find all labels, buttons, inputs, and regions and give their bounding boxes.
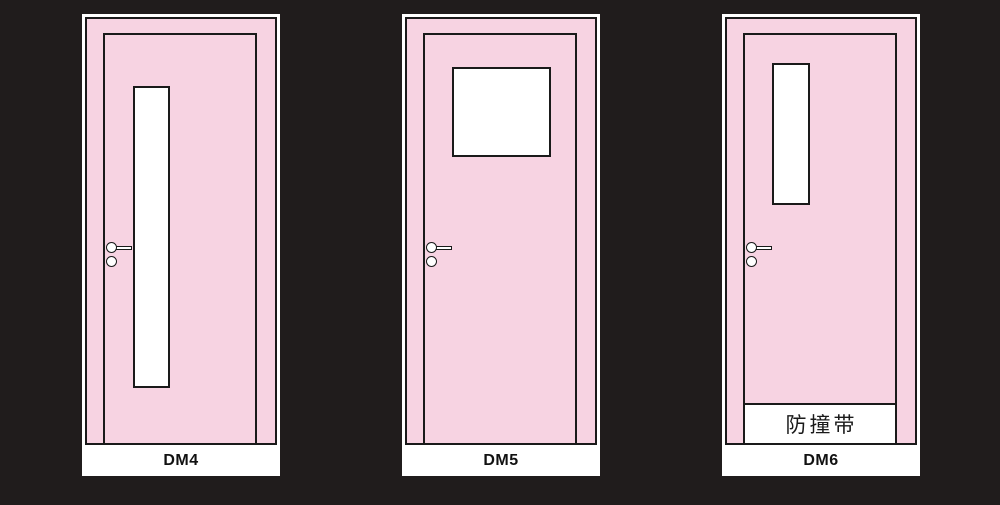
- anti-collision-strip-label: 防撞带: [783, 409, 858, 439]
- door-figure-dm4: DM4: [82, 14, 280, 476]
- anti-collision-strip: 防撞带: [745, 403, 895, 443]
- door-figure-dm5: DM5: [402, 14, 600, 476]
- handle-knob: [426, 242, 437, 253]
- door-model-label: DM4: [82, 445, 280, 476]
- door-leaf: [423, 33, 577, 443]
- drawing-canvas: { "colors": { "bg": "#201c1c", "pink": "…: [0, 0, 1000, 505]
- lock-cylinder: [746, 256, 757, 267]
- lock-cylinder: [426, 256, 437, 267]
- door-model-label: DM6: [722, 445, 920, 476]
- handle-knob: [106, 242, 117, 253]
- door-handle: [106, 242, 136, 268]
- vision-panel-glass: [452, 67, 551, 157]
- door-elevation-drawings: DM4 DM5: [0, 0, 1000, 505]
- vision-panel-glass: [133, 86, 170, 388]
- lock-cylinder: [106, 256, 117, 267]
- door-model-label: DM5: [402, 445, 600, 476]
- vision-panel-glass: [772, 63, 810, 205]
- door-handle: [746, 242, 776, 268]
- door-leaf: 防撞带: [743, 33, 897, 443]
- door-figure-dm6: 防撞带 DM6: [722, 14, 920, 476]
- door-frame: [405, 17, 597, 445]
- door-leaf: [103, 33, 257, 443]
- door-frame: 防撞带: [725, 17, 917, 445]
- door-handle: [426, 242, 456, 268]
- door-frame: [85, 17, 277, 445]
- handle-knob: [746, 242, 757, 253]
